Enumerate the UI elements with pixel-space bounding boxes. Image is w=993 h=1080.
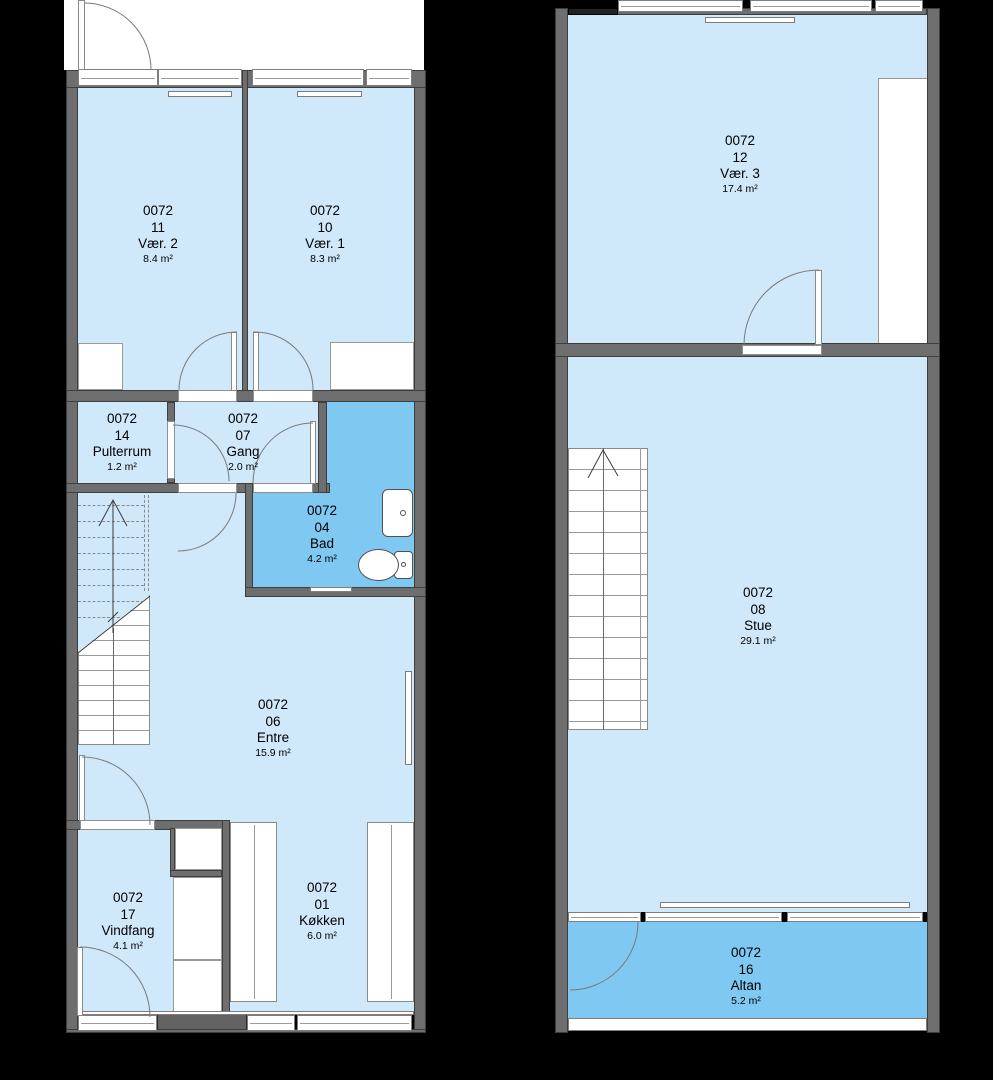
room-number: 0072 [307,503,337,520]
window-vaer3-top-right [875,0,923,12]
staircase-right-plan [568,448,648,730]
room-name: Vær. 2 [138,236,178,253]
door-leaf-bad [310,421,316,484]
room-area: 8.4 m² [138,253,178,266]
window-door-vindfang-bottom [78,1015,157,1031]
room-name: Bad [307,536,337,553]
room-number: 0072 [740,585,776,602]
window-kokken-bottom-right [297,1015,412,1031]
room-label-gang: 0072 07 Gang 2.0 m² [226,411,259,474]
room-name: Køkken [299,913,345,930]
entry-door-top [78,69,158,86]
door-opening-vaer3 [742,345,822,355]
stair-dashed-tread [78,569,144,570]
wall-niche-bottom [170,870,222,877]
room-no: 14 [93,428,152,445]
room-number: 0072 [731,945,762,962]
radiator-entre [405,671,412,765]
room-area: 6.0 m² [299,930,345,943]
shower-mat-bad [310,587,352,592]
radiator-vaer3 [705,17,795,23]
room-label-pulterrum: 0072 14 Pulterrum 1.2 m² [93,411,152,474]
wall-left-exterior-right-plan [555,8,568,1033]
room-area: 15.9 m² [255,747,291,760]
room-name: Gang [226,444,259,461]
room-no: 04 [307,520,337,537]
door-leaf-entre-vindfang [79,755,85,821]
door-leaf-vaer3 [815,270,822,345]
room-no: 11 [138,220,178,237]
wall-bad-left [245,483,253,597]
room-name: Vær. 1 [305,236,345,253]
room-label-vaer3: 0072 12 Vær. 3 17.4 m² [720,133,760,196]
altan-edge [568,1018,927,1031]
window-vaer3-top-left [618,0,743,12]
room-no: 06 [255,714,291,731]
room-no: 17 [101,907,154,924]
door-opening-pulterrum [167,421,175,479]
room-number: 0072 [226,411,259,428]
room-floor-bad-upper [327,402,414,493]
closet-vaer1 [330,342,414,390]
room-label-kokken: 0072 01 Køkken 6.0 m² [299,880,345,943]
door-opening-vaer1 [253,390,313,402]
niche-vaer3 [878,78,928,344]
room-area: 17.4 m² [720,183,760,196]
wall-kokken-divider [222,820,230,1015]
room-label-entre: 0072 06 Entre 15.9 m² [255,697,291,760]
door-opening-vaer2 [178,390,237,402]
room-name: Pulterrum [93,444,152,461]
window-vaer1-right [366,69,412,86]
staircase-inner-edge [640,448,641,730]
door-leaf-entry-top [78,0,85,70]
door-leaf-vaer2 [231,332,237,391]
wall-right-exterior-right-plan [927,8,940,1033]
room-name: Stue [740,618,776,635]
room-no: 08 [740,602,776,619]
room-area: 4.2 m² [307,553,337,566]
room-number: 0072 [255,697,291,714]
room-name: Altan [731,978,762,995]
kitchen-counter-left [230,822,277,1002]
room-number: 0072 [720,133,760,150]
room-area: 5.2 m² [731,995,762,1008]
room-number: 0072 [305,203,345,220]
sink [382,489,413,537]
floor-plan-canvas: 0072 11 Vær. 2 8.4 m² 0072 10 Vær. 1 8.3… [0,0,993,1080]
room-name: Entre [255,730,291,747]
wall-below-bedrooms [66,390,426,402]
toilet-tank-button [401,562,406,567]
room-name: Vindfang [101,923,154,940]
closet-vaer2 [78,343,123,390]
stair-dashed-edge [144,495,145,591]
door-opening-gang-bad [253,483,313,493]
door-leaf-vaer1 [253,332,259,391]
door-opening-gang-entre [178,483,237,493]
stair-dashed-tread [78,537,144,538]
closet-vindfang-lower [173,960,222,1013]
left-plan-entry-porch [64,0,424,70]
room-label-altan: 0072 16 Altan 5.2 m² [731,945,762,1008]
window-stue-bottom-right [787,912,923,922]
room-name: Vær. 3 [720,166,760,183]
room-number: 0072 [101,890,154,907]
room-area: 2.0 m² [226,461,259,474]
closet-vindfang-niche [175,828,222,870]
room-no: 12 [720,150,760,167]
window-vaer2 [158,69,242,86]
window-kokken-bottom-left [247,1015,295,1031]
room-label-vaer2: 0072 11 Vær. 2 8.4 m² [138,203,178,266]
room-area: 4.1 m² [101,940,154,953]
staircase-center-line [603,448,604,730]
stair-dashed-tread [78,505,144,506]
room-area: 1.2 m² [93,461,152,474]
door-opening-vindfang [80,820,155,830]
room-area: 8.3 m² [305,253,345,266]
stair-dashed-tread [78,585,144,586]
sink-drain [400,510,406,516]
wall-top-solid-segment [568,8,618,15]
room-area: 29.1 m² [740,635,776,648]
window-vaer3-top-mid [750,0,872,12]
stair-dashed-tread [78,601,144,602]
radiator-vaer1 [297,91,362,97]
wall-left-exterior [66,70,78,1033]
stair-dashed-edge [148,495,149,591]
radiator-stue [660,902,910,908]
room-label-stue: 0072 08 Stue 29.1 m² [740,585,776,648]
closet-vindfang-upper [173,877,222,960]
room-number: 0072 [93,411,152,428]
toilet-bowl [358,549,399,581]
room-number: 0072 [299,880,345,897]
room-no: 07 [226,428,259,445]
staircase-center-line [113,628,114,745]
stair-dashed-tread [78,553,144,554]
room-number: 0072 [138,203,178,220]
window-stue-bottom-mid [645,912,782,922]
door-leaf-vindfang-exterior [77,947,83,1016]
room-label-vaer1: 0072 10 Vær. 1 8.3 m² [305,203,345,266]
room-label-vindfang: 0072 17 Vindfang 4.1 m² [101,890,154,953]
wall-gang-bad [318,402,327,493]
room-label-bad: 0072 04 Bad 4.2 m² [307,503,337,566]
stair-dashed-tread [78,521,144,522]
kitchen-counter-right [367,822,414,1002]
altan-door-opening [568,912,641,922]
wall-right-exterior [414,70,426,1033]
window-vaer1-left [252,69,364,86]
room-no: 16 [731,962,762,979]
room-no: 10 [305,220,345,237]
wall-bedroom-divider [242,70,248,402]
room-no: 01 [299,897,345,914]
radiator-vaer2 [168,91,232,97]
